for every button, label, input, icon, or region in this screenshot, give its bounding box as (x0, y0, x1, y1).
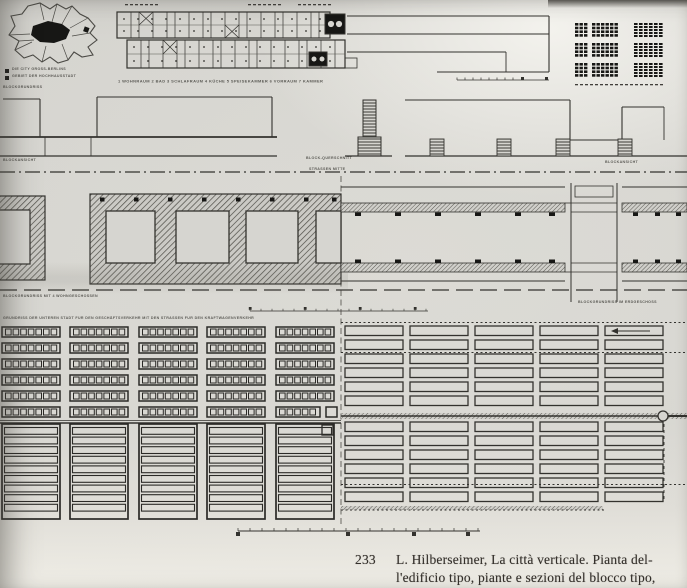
photo-edge-shadow (548, 0, 687, 8)
map-legend-bullet-2 (5, 76, 9, 80)
lower-city-plan-label: GRUNDRISS DER UNTEREN STADT FÜR DEN GESC… (3, 316, 254, 320)
book-page-photo: DIE CITY GROSS-BERLINS GEBIET DER HOCHHA… (0, 0, 687, 588)
map-legend-label-2: GEBIET DER HOCHHAUSSTADT (12, 74, 76, 78)
caption-line-2: l'edificio tipo, piante e sezioni del bl… (396, 570, 656, 585)
block-elevation-left-label: BLOCKANSICHT (3, 158, 36, 162)
map-legend-label-1: DIE CITY GROSS-BERLINS (12, 67, 66, 71)
city-core-blob (31, 21, 70, 43)
block-cross-section-label: BLOCK-QUERSCHNITT (306, 156, 352, 160)
figure-number: 233 (355, 551, 376, 569)
map-legend-bullet-1 (5, 69, 9, 73)
block-plan-top-label: BLOCKGRUNDRISS (3, 85, 42, 89)
street-center-label: STRASSEN MITTE (309, 167, 345, 171)
berlin-city-map (9, 3, 97, 63)
block-plan-left-label: BLOCKGRUNDRISS MIT 4 WOHNGESCHOSSEN (3, 294, 98, 298)
lower-city-plan-left (0, 327, 341, 519)
block-plan-right-label: BLOCKGRUNDRISS IM ERDGESCHOSS (578, 300, 657, 304)
hilberseimer-plate-drawing (0, 0, 687, 588)
typical-floor-plan (117, 4, 549, 80)
black-square-grids (575, 23, 663, 85)
block-elevation-right-label: BLOCKANSICHT (605, 160, 638, 164)
plan-room-legend: 1 WOHNRAUM 2 BAD 3 SCHLAFRAUM 4 KÜCHE 5 … (118, 79, 323, 84)
caption-line-1: L. Hilberseimer, La città verticale. Pia… (396, 552, 653, 567)
figure-caption: 233 L. Hilberseimer, La città verticale.… (352, 551, 687, 586)
courtyard-block-plan (0, 194, 341, 284)
lower-city-plan-right (341, 323, 687, 511)
